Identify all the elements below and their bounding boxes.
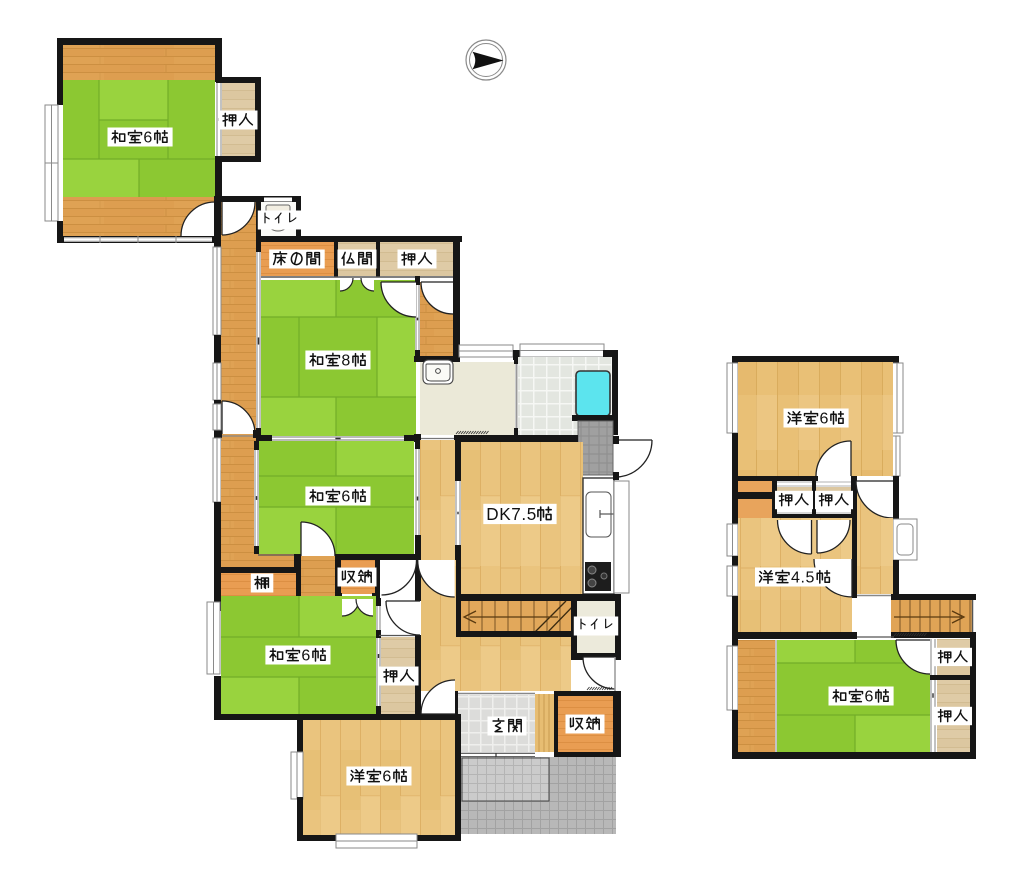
svg-text:6: 6 xyxy=(820,411,830,428)
svg-text:6: 6 xyxy=(143,130,153,147)
svg-text:6: 6 xyxy=(341,489,351,506)
svg-text:8: 8 xyxy=(341,353,351,370)
svg-text:6: 6 xyxy=(382,769,392,786)
svg-text:6: 6 xyxy=(301,648,311,665)
svg-text:DK7.5: DK7.5 xyxy=(486,505,537,524)
svg-text:4.5: 4.5 xyxy=(791,570,815,587)
svg-text:6: 6 xyxy=(865,689,875,706)
